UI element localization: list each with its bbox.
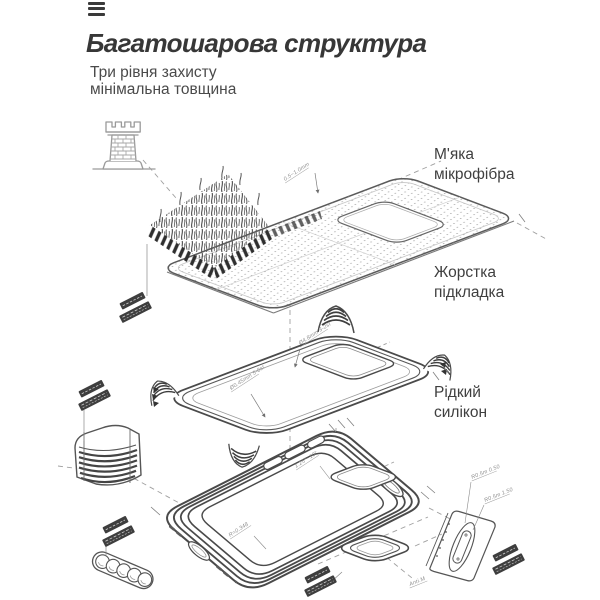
svg-text:R0.5m 0.50: R0.5m 0.50	[471, 464, 502, 481]
detail-corner-bumper	[75, 426, 141, 485]
spec-tag-ring	[299, 565, 337, 597]
layer-microfiber-sheet: 0.5~1.0mm	[148, 161, 517, 313]
detail-speaker-strip	[90, 549, 156, 591]
spec-tag-fuzz	[114, 291, 152, 323]
sheet-dimension-annotation: 0.5~1.0mm	[282, 161, 318, 193]
spec-tag-speaker	[97, 515, 135, 547]
spec-tag-bumper	[73, 379, 111, 411]
svg-text:0.5~1.0mm: 0.5~1.0mm	[283, 161, 311, 182]
svg-text:Anti.M: Anti.M	[408, 576, 427, 588]
spec-tag-plate	[487, 543, 525, 575]
svg-text:R0.5m 1.50: R0.5m 1.50	[484, 487, 515, 504]
exploded-diagram: 0.5~1.0mm	[0, 0, 600, 600]
infographic-page: Багатошарова структура Три рівня захисту…	[0, 0, 600, 600]
